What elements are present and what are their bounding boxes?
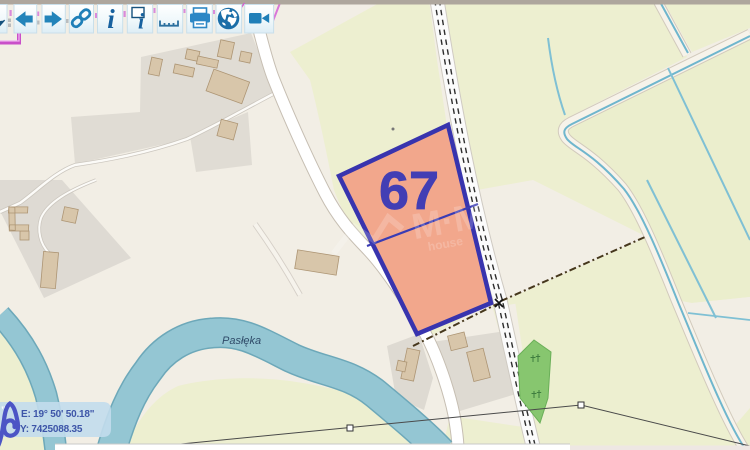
- svg-text:E: 19° 50' 50.18": E: 19° 50' 50.18": [21, 409, 95, 420]
- svg-text:i: i: [107, 4, 115, 34]
- svg-text:i: i: [138, 9, 145, 34]
- svg-text:Pasłęka: Pasłęka: [222, 335, 261, 347]
- svg-text:Y: 7425088.35: Y: 7425088.35: [20, 424, 83, 435]
